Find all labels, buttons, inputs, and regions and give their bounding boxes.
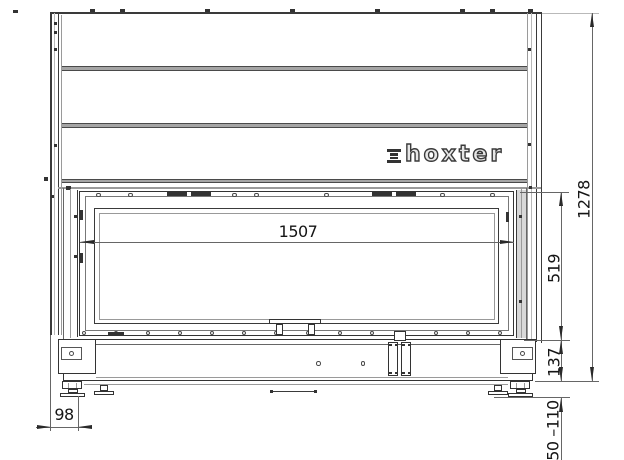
adjustable-foot-plate [488,391,508,396]
side-wall-left-line [58,13,59,335]
fireplace-drawing: hoxter [0,0,624,460]
dim-arrow-down [590,367,594,381]
door-handle-post [308,324,315,335]
screw-icon [466,331,470,335]
logo-glyph-icon [387,149,401,152]
door-frame-line [521,189,522,338]
screw-icon [324,193,329,198]
bracket-screw [402,344,405,347]
bracket-screw [389,372,392,375]
screw-icon [370,331,374,335]
floor-mark [271,391,317,392]
screw-icon [242,331,246,335]
hood-band [62,179,527,184]
side-wall-left-line [61,15,62,335]
bottom-fitting [108,332,124,335]
side-wall-left-line [54,13,55,335]
base-panel [63,339,533,381]
base-hole [361,361,366,366]
dim-label-foot-height: 50 –110 [544,393,563,460]
screw-icon [232,193,237,198]
hinge [372,192,392,197]
latch-mark [506,212,509,222]
screw-dot [519,215,522,218]
dim-arrow-left [80,240,94,244]
dim-arrow-up [559,192,563,206]
screw-dot [528,143,531,146]
foot-thread [68,383,69,388]
screw-icon [96,193,101,198]
bracket-screw [408,344,411,347]
hinge [396,192,416,197]
screw-icon [498,331,502,335]
lock-bracket-top [394,331,406,341]
brand-wordmark: hoxter [405,144,504,166]
screw-icon [434,331,438,335]
floor-mark-end [314,390,317,393]
hinge [167,192,187,197]
hood-band [62,123,527,128]
screw-dot [51,195,54,198]
adjustable-foot-plate [60,393,85,398]
screw-dot [54,48,57,51]
corner-mark [44,177,48,181]
door-handle-post [276,324,283,335]
bracket-screw [402,372,405,375]
adjustable-foot-plate [94,391,114,396]
screw-dot [54,22,57,25]
dim-arrow-right [37,425,51,429]
bracket-screw [389,344,392,347]
bracket-screw [408,372,411,375]
dim-label-opening-height: 519 [545,239,564,299]
dim-arrow-up [590,13,594,27]
screw-dot [519,300,522,303]
latch-mark [80,253,83,263]
screw-dot [54,144,57,147]
latch-mark [80,210,83,220]
screw-icon [440,193,445,198]
logo-glyph-icon [390,157,398,160]
hood-top-edge [50,12,542,14]
screw-dot [54,31,57,34]
dim-label-base-height: 137 [544,337,563,387]
foot-block-screw [520,351,525,356]
foot-thread [524,383,525,388]
plinth-line [84,384,508,385]
screw-icon [210,331,214,335]
logo-glyph-icon [390,153,398,156]
dim-arrow-left [78,425,92,429]
side-wall-right [541,12,543,343]
floor-mark-end [270,390,273,393]
hood-bottom-line [58,187,541,189]
dim-line [80,242,514,243]
base-inner-line [96,377,508,378]
screw-icon [128,193,133,198]
screw-icon [178,331,182,335]
bracket-screw [395,372,398,375]
screw-dot [74,255,77,258]
door-frame-line [77,190,78,337]
foot-thread [516,383,517,388]
hood-band [62,66,527,71]
dim-label-total-height: 1278 [575,165,594,235]
screw-dot [528,48,531,51]
screw-icon [82,331,86,335]
screw-dot [529,186,532,189]
door-frame-line [70,189,71,338]
screw-icon [146,331,150,335]
bracket-screw [395,344,398,347]
dim-label-opening-width: 1507 [268,222,328,241]
edge-tick [13,10,18,13]
screw-icon [338,331,342,335]
door-frame-line [526,188,527,340]
side-wall-right-line [527,13,528,343]
dim-arrow-right [500,240,514,244]
side-wall-right-line [531,13,532,343]
side-wall-left [50,12,52,335]
hinge [191,192,211,197]
screw-icon [490,193,495,198]
base-inner-line [96,344,508,345]
screw-dot [74,215,77,218]
foot-thread [76,383,77,388]
base-hole [316,361,321,366]
foot-block-screw [69,351,74,356]
door-frame-line [516,190,517,338]
dim-label-side-depth: 98 [44,405,84,424]
screw-icon [254,193,259,198]
door-frame-line [63,188,64,340]
side-wall-right-line [536,13,537,342]
logo-glyph-icon [387,160,401,163]
